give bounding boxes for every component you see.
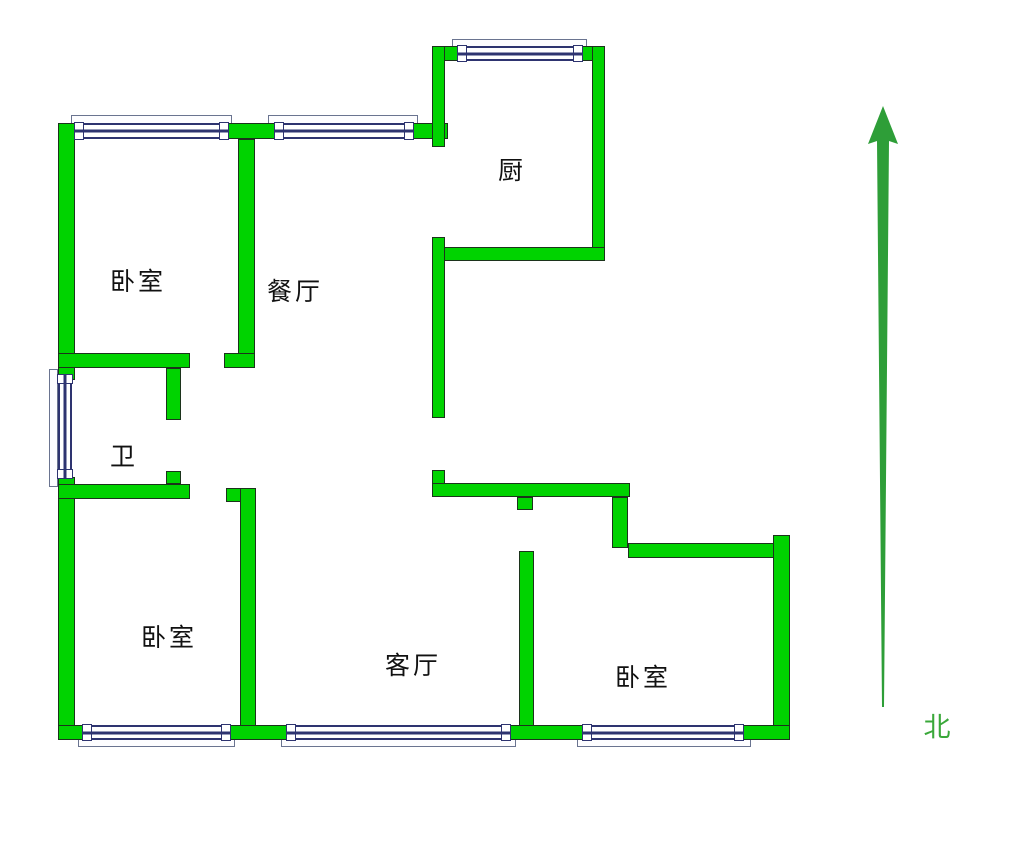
wall-bedroom3-top [628,543,790,558]
room-label-bathroom: 卫 [110,437,138,473]
window-jamb [573,45,583,62]
window-jamb [74,122,84,140]
window-jamb [734,724,744,741]
room-label-bedroom-bottom-right: 卧室 [615,658,671,694]
room-label-bedroom-bottom-left: 卧室 [141,618,197,654]
wall-kitchen-bottom [432,247,605,261]
wall-divider-end-cap [224,353,255,368]
wall-living-top [432,483,630,497]
window-jamb [82,724,92,741]
window-kitchen [458,46,582,61]
window-jamb [219,122,229,140]
wall-bedroom1-dining-divider [238,139,255,368]
wall-kitchen-left [432,46,445,147]
window-jamb [274,122,284,140]
wall-left-exterior-lower [58,477,75,740]
wall-step-vertical [612,497,628,548]
wall-bottom-pier-2 [230,725,287,740]
window-bathroom [58,375,72,478]
wall-bottom-pier-3 [510,725,583,740]
window-jamb [457,45,467,62]
window-jamb [286,724,296,741]
window-bedroom-top-left [75,123,228,139]
wall-bathroom-top [58,353,190,368]
wall-bottom-pier-4 [743,725,790,740]
floor-plan-canvas: 厨 卧室 餐厅 卫 卧室 客厅 卧室 北 [0,0,1024,847]
window-jamb [404,122,414,140]
window-jamb [582,724,592,741]
window-bedroom-bottom-left [83,725,230,740]
wall-bathroom-bottom [58,484,190,499]
wall-bathroom-stub-lower [166,471,181,484]
window-bedroom-bottom-right [583,725,743,740]
wall-hall-notch [432,470,445,484]
wall-dining-right [432,237,445,418]
window-jamb [57,374,73,384]
window-living-room [287,725,510,740]
wall-kitchen-right [592,46,605,261]
room-label-bedroom-top-left: 卧室 [110,262,166,298]
wall-bedroom3-door-stub [517,497,533,510]
north-arrow-icon [855,100,911,715]
wall-left-exterior-upper [58,123,75,380]
window-jamb [57,469,73,479]
window-jamb [501,724,511,741]
wall-bottom-pier-1 [58,725,83,740]
room-label-kitchen: 厨 [498,151,526,187]
window-dining [275,123,413,139]
wall-top-center-pier [228,123,275,139]
room-label-dining: 餐厅 [267,272,323,308]
wall-bathroom-stub-upper [166,368,181,420]
room-label-living: 客厅 [385,646,441,682]
wall-right-exterior [773,535,790,740]
window-jamb [221,724,231,741]
wall-bedroom2-living-divider [240,488,256,740]
north-label: 北 [924,706,951,745]
wall-bedroom3-left [519,551,534,740]
